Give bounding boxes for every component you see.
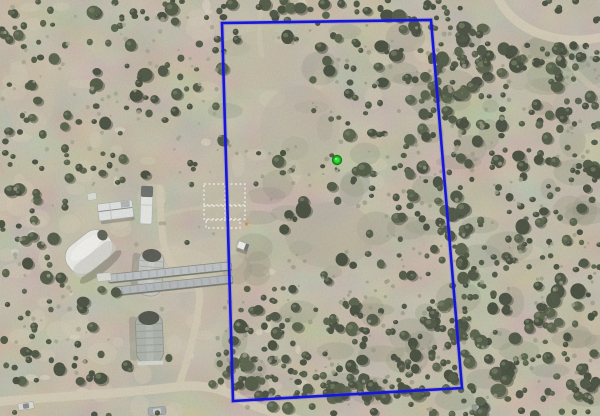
photo-grain-texture [0,0,600,416]
aerial-photo-canvas [0,0,600,416]
marker-shadow-dot [335,167,338,170]
marker-core [334,157,340,163]
aerial-map-view[interactable] [0,0,600,416]
marker-highlight [335,158,337,160]
marker-shadow-dot [338,170,340,172]
